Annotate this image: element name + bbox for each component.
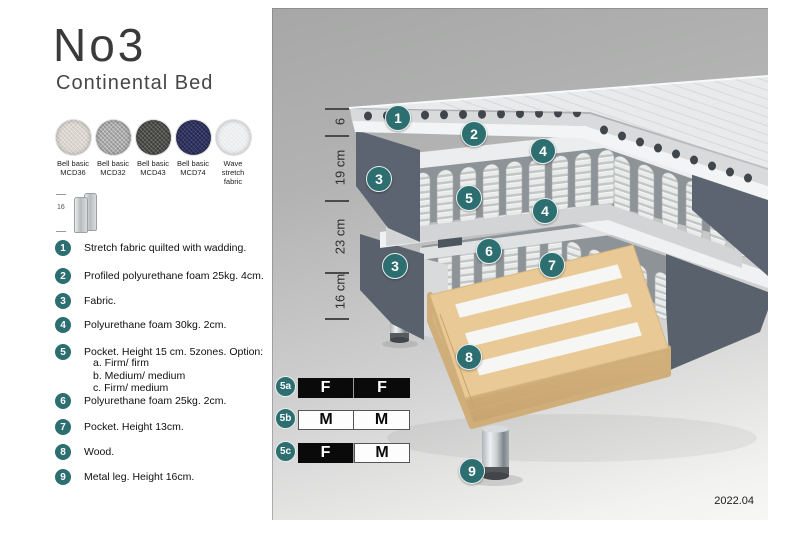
leg-cylinder-front <box>74 197 88 233</box>
firmness-cell: M <box>354 443 410 463</box>
callout-3-upper: 3 <box>366 166 392 192</box>
version-date: 2022.04 <box>714 495 754 507</box>
ruler-tick <box>325 200 349 202</box>
fabric-swatch-circle <box>136 120 171 155</box>
material-item-1: 1 Stretch fabric quilted with wadding. <box>55 239 246 257</box>
fabric-swatch-circle <box>176 120 211 155</box>
material-item-6: 6 Polyurethane foam 25kg. 2cm. <box>55 392 226 410</box>
front-leg <box>482 426 509 481</box>
swatch-wave: Wavestretch fabric <box>214 120 252 186</box>
item-text: Polyurethane foam 30kg. 2cm. <box>84 319 226 331</box>
material-item-2: 2 Profiled polyurethane foam 25kg. 4cm. <box>55 267 264 285</box>
swatch-code: MCD74 <box>180 168 205 177</box>
material-item-3: 3 Fabric. <box>55 292 116 310</box>
leg-height-label: 16 <box>57 204 65 211</box>
material-item-8: 8 Wood. <box>55 443 114 461</box>
ruler-tick <box>325 318 349 320</box>
item-text: Polyurethane foam 25kg. 2cm. <box>84 395 226 407</box>
item-number-badge: 1 <box>55 240 71 256</box>
callout-4-upper: 4 <box>530 138 556 164</box>
dim-upper-box: 19 cm <box>333 140 348 196</box>
material-item-9: 9 Metal leg. Height 16cm. <box>55 468 194 486</box>
fabric-swatch-circle <box>56 120 91 155</box>
firmness-table-5c: F M <box>298 443 410 463</box>
item-number-badge: 8 <box>55 444 71 460</box>
swatch-mcd74: Bell basicMCD74 <box>174 120 212 186</box>
item-number-badge: 5 <box>55 344 71 360</box>
fabric-swatch-circle <box>216 120 251 155</box>
item-text: Pocket. Height 13cm. <box>84 421 184 433</box>
leg-height-icon: 16 <box>56 186 120 238</box>
item-number-badge: 7 <box>55 419 71 435</box>
firmness-cell: F <box>298 443 354 463</box>
firmness-cell: M <box>354 410 410 430</box>
item-text: Metal leg. Height 16cm. <box>84 471 194 483</box>
firmness-5c-badge: 5c <box>275 441 296 462</box>
firmness-cell: F <box>354 378 410 398</box>
callout-5: 5 <box>456 185 482 211</box>
pocket-options: a. Firm/ firm b. Medium/ medium c. Firm/… <box>93 357 185 395</box>
material-item-7: 7 Pocket. Height 13cm. <box>55 418 184 436</box>
swatch-label: Bell basic <box>97 159 129 168</box>
spec-sheet: No3 Continental Bed Bell basicMCD36 Bell… <box>0 0 800 533</box>
callout-8: 8 <box>456 344 482 370</box>
item-text: Wood. <box>84 446 114 458</box>
callout-1: 1 <box>385 105 411 131</box>
leg-bracket-bottom <box>56 231 66 232</box>
page-subtitle: Continental Bed <box>56 72 213 95</box>
swatch-code: MCD43 <box>140 168 165 177</box>
item-number-badge: 9 <box>55 469 71 485</box>
swatch-code: MCD32 <box>100 168 125 177</box>
item-number-badge: 3 <box>55 293 71 309</box>
fabric-swatch-circle <box>96 120 131 155</box>
firmness-table-5b: M M <box>298 410 410 430</box>
firmness-5a-badge: 5a <box>275 376 296 397</box>
callout-9: 9 <box>459 458 485 484</box>
firmness-cell: F <box>298 378 354 398</box>
callout-3-lower: 3 <box>382 253 408 279</box>
swatch-mcd43: Bell basicMCD43 <box>134 120 172 186</box>
swatch-label: Wave <box>224 159 243 168</box>
item-number-badge: 2 <box>55 268 71 284</box>
swatch-code: stretch fabric <box>222 168 245 186</box>
firmness-cell: M <box>298 410 354 430</box>
swatch-mcd32: Bell basicMCD32 <box>94 120 132 186</box>
item-number-badge: 4 <box>55 317 71 333</box>
fabric-swatches: Bell basicMCD36 Bell basicMCD32 Bell bas… <box>54 120 252 186</box>
option-a: a. Firm/ firm <box>93 357 185 370</box>
illustration-panel: 6 19 cm 23 cm 16 cm 1 2 4 3 5 4 6 7 3 8 … <box>272 8 768 520</box>
option-b: b. Medium/ medium <box>93 370 185 383</box>
leg-bracket-top <box>56 194 66 195</box>
swatch-label: Bell basic <box>137 159 169 168</box>
swatch-mcd36: Bell basicMCD36 <box>54 120 92 186</box>
callout-2: 2 <box>461 121 487 147</box>
material-item-4: 4 Polyurethane foam 30kg. 2cm. <box>55 316 226 334</box>
callout-6: 6 <box>476 238 502 264</box>
firmness-table-5a: F F <box>298 378 410 398</box>
firmness-5b-badge: 5b <box>275 408 296 429</box>
item-text: Profiled polyurethane foam 25kg. 4cm. <box>84 270 264 282</box>
ruler-tick <box>325 135 349 137</box>
swatch-label: Bell basic <box>57 159 89 168</box>
page-title: No3 <box>53 18 146 72</box>
callout-4-lower: 4 <box>532 198 558 224</box>
callout-7: 7 <box>539 252 565 278</box>
swatch-code: MCD36 <box>60 168 85 177</box>
swatch-label: Bell basic <box>177 159 209 168</box>
item-text: Stretch fabric quilted with wadding. <box>84 242 246 254</box>
item-number-badge: 6 <box>55 393 71 409</box>
dim-leg: 16 cm <box>333 264 348 320</box>
item-text: Fabric. <box>84 295 116 307</box>
dim-lower-box: 23 cm <box>333 209 348 265</box>
